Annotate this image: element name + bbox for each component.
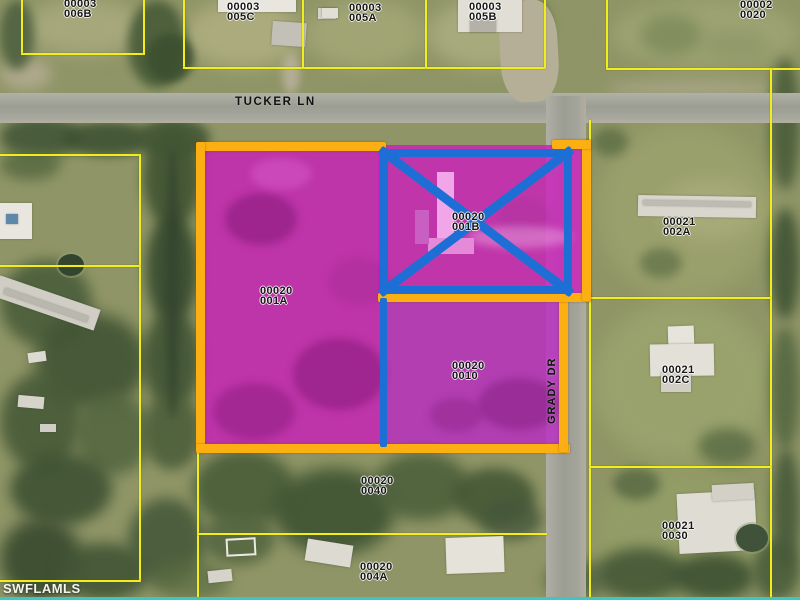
aerial-map: 00003 006B00003 005C00003 005A00003 005B…	[0, 0, 800, 600]
street-label-tucker-ln: TUCKER LN	[235, 96, 316, 108]
parcel-label-004A: 00020 004A	[360, 563, 393, 582]
parcel-label-002C: 00021 002C	[662, 366, 695, 385]
parcel-label-006B: 00003 006B	[64, 0, 97, 19]
mls-watermark-text: SWFLAMLS	[3, 581, 81, 596]
parcel-label-001A: 00020 001A	[260, 287, 293, 306]
parcel-label-002A: 00021 002A	[663, 218, 696, 237]
parcel-label-0010: 00020 0010	[452, 362, 485, 381]
parcel-label-001B: 00020 001B	[452, 213, 485, 232]
parcel-label-0040: 00020 0040	[361, 477, 394, 496]
street-label-grady-dr: GRADY DR	[546, 358, 558, 424]
parcel-labels-layer: 00003 006B00003 005C00003 005A00003 005B…	[0, 0, 800, 600]
parcel-label-0030: 00021 0030	[662, 522, 695, 541]
parcel-label-005B: 00003 005B	[469, 3, 502, 22]
parcel-label-0020: 00002 0020	[740, 1, 773, 20]
parcel-label-005A: 00003 005A	[349, 4, 382, 23]
parcel-label-005C: 00003 005C	[227, 3, 260, 22]
